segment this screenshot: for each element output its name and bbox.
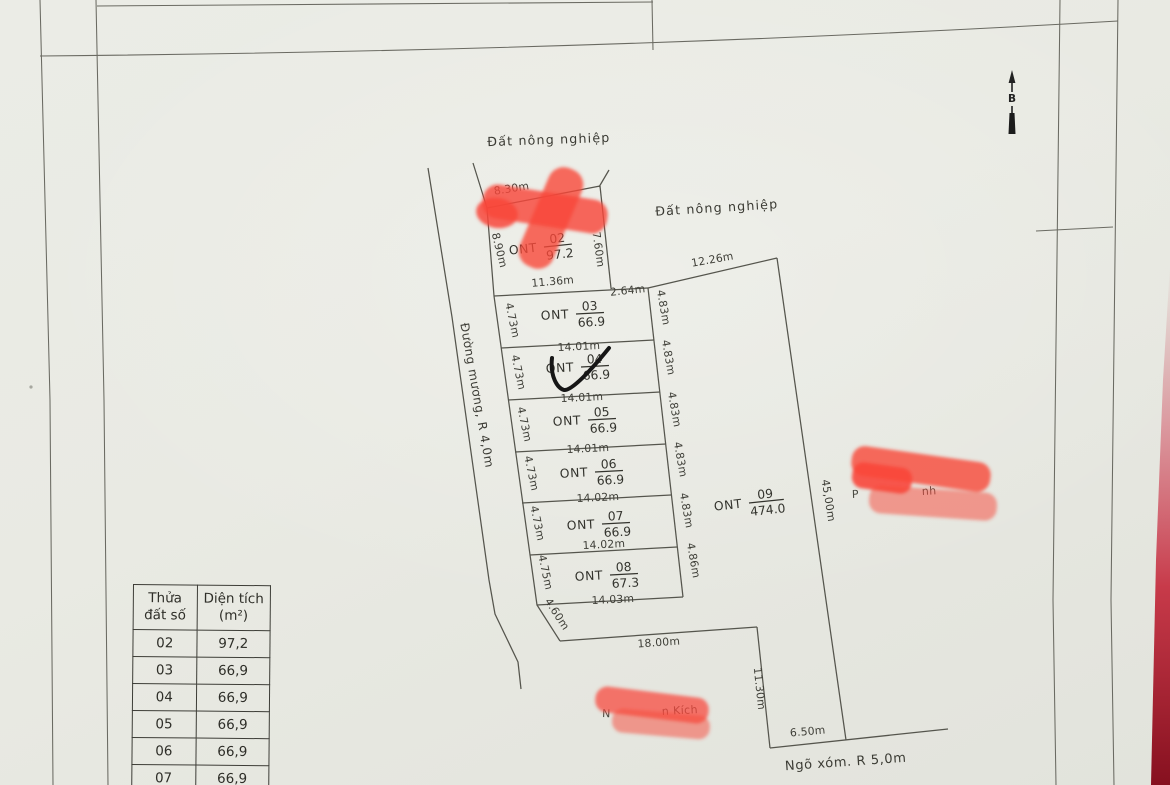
cell-area: 66,9 bbox=[196, 738, 270, 766]
svg-text:474.0: 474.0 bbox=[750, 501, 786, 519]
cell-plot: 05 bbox=[132, 710, 196, 738]
cell-plot: 06 bbox=[132, 737, 196, 765]
svg-text:ONT: ONT bbox=[566, 517, 595, 532]
cell-plot: 03 bbox=[133, 657, 197, 685]
plot-label-05: ONT 05 66.9 bbox=[552, 405, 617, 438]
dim-18-00: 18.00m bbox=[637, 635, 680, 651]
table-row: 06 66,9 bbox=[132, 737, 269, 765]
dim-14-01-c: 14.01m bbox=[566, 441, 609, 456]
plot-label-09: ONT 09 474.0 bbox=[713, 485, 787, 522]
table-row: 07 66,9 bbox=[132, 764, 269, 785]
dim-4-60: 4.60m bbox=[542, 596, 572, 633]
table-row: 04 66,9 bbox=[132, 684, 269, 712]
dim-4-83-a: 4.83m bbox=[654, 289, 673, 326]
svg-text:67.3: 67.3 bbox=[611, 575, 639, 590]
name-fragment-right-start: P bbox=[852, 488, 859, 501]
cell-area: 66,9 bbox=[196, 711, 270, 739]
header-area-line1: Diện tích bbox=[203, 591, 263, 608]
dim-45-00: 45,00m bbox=[819, 478, 839, 522]
cell-area: 66,9 bbox=[196, 657, 270, 685]
land-use-label-top: Đất nông nghiệp bbox=[487, 130, 611, 149]
dim-4-73-b: 4.73m bbox=[508, 354, 528, 391]
plot-label-08: ONT 08 67.3 bbox=[574, 560, 639, 593]
dim-12-26: 12.26m bbox=[690, 249, 734, 269]
svg-text:05: 05 bbox=[593, 405, 609, 420]
svg-text:ONT: ONT bbox=[552, 413, 581, 428]
cell-area: 97,2 bbox=[196, 630, 270, 658]
dim-4-86: 4.86m bbox=[684, 542, 703, 579]
svg-text:66.9: 66.9 bbox=[577, 314, 605, 329]
table-header-row: Thửa đất số Diện tích (m²) bbox=[133, 585, 270, 631]
header-area: Diện tích (m²) bbox=[197, 585, 271, 631]
svg-text:ONT: ONT bbox=[713, 497, 743, 514]
table-row: 02 97,2 bbox=[133, 630, 270, 658]
dim-4-73-c: 4.73m bbox=[514, 406, 534, 443]
dim-4-75: 4.75m bbox=[535, 554, 555, 591]
alley-road-label: Ngõ xóm. R 5,0m bbox=[785, 751, 907, 774]
dim-2-64: 2.64m bbox=[609, 282, 646, 299]
dim-4-83-b: 4.83m bbox=[659, 339, 678, 376]
svg-text:66.9: 66.9 bbox=[596, 472, 624, 487]
svg-text:08: 08 bbox=[615, 560, 631, 575]
header-plot-line1: Thửa bbox=[148, 590, 182, 606]
dim-11-36: 11.36m bbox=[531, 273, 575, 290]
plot-label-07: ONT 07 66.9 bbox=[566, 509, 631, 542]
dim-4-83-e: 4.83m bbox=[677, 492, 696, 529]
scribble-bottom-name bbox=[594, 685, 711, 740]
dust-speck bbox=[29, 385, 32, 388]
dim-14-01-b: 14.01m bbox=[560, 390, 603, 405]
land-use-label-right: Đất nông nghiệp bbox=[655, 196, 779, 218]
dim-4-73-d: 4.73m bbox=[521, 455, 541, 492]
cell-plot: 07 bbox=[132, 764, 196, 785]
plot-label-03: ONT 03 66.9 bbox=[540, 299, 605, 332]
svg-text:ONT: ONT bbox=[540, 307, 569, 322]
svg-text:66.9: 66.9 bbox=[589, 420, 617, 435]
north-label: B bbox=[1008, 93, 1016, 105]
table-row: 03 66,9 bbox=[133, 657, 270, 685]
plot-area-table: Thửa đất số Diện tích (m²) 02 97,2 03 66… bbox=[131, 584, 271, 785]
cell-area: 66,9 bbox=[195, 765, 269, 785]
table-row: 05 66,9 bbox=[132, 710, 269, 738]
dim-4-83-d: 4.83m bbox=[671, 441, 690, 478]
photo-edge-red-strip bbox=[1151, 265, 1170, 785]
svg-text:03: 03 bbox=[581, 299, 597, 314]
dim-4-73-e: 4.73m bbox=[527, 505, 547, 542]
scribble-plot-02 bbox=[474, 162, 610, 274]
scribble-right-name bbox=[850, 444, 998, 521]
dim-14-03: 14.03m bbox=[591, 592, 634, 607]
north-arrow: B bbox=[1008, 70, 1016, 134]
svg-text:ONT: ONT bbox=[574, 568, 603, 583]
dim-6-50: 6.50m bbox=[789, 723, 826, 739]
cell-plot: 04 bbox=[132, 684, 196, 712]
header-plot-line2: đất số bbox=[144, 607, 186, 623]
plot-label-06: ONT 06 66.9 bbox=[559, 457, 624, 490]
dim-4-83-c: 4.83m bbox=[665, 391, 684, 428]
red-marker-scribbles bbox=[474, 162, 998, 740]
dim-7-60: 7.60m bbox=[590, 231, 608, 268]
redacted-name-fragments: P nh N n Kích bbox=[602, 484, 937, 720]
photographed-cadastral-sheet: B Đất nông nghiệp Đất nông nghiệp Đường … bbox=[0, 0, 1170, 785]
svg-text:66.9: 66.9 bbox=[603, 524, 631, 539]
svg-text:07: 07 bbox=[607, 509, 623, 524]
cell-plot: 02 bbox=[133, 630, 197, 658]
header-area-line2: (m²) bbox=[219, 608, 248, 624]
svg-text:ONT: ONT bbox=[559, 465, 588, 480]
header-plot-number: Thửa đất số bbox=[133, 585, 197, 631]
dim-14-02-a: 14.02m bbox=[576, 490, 619, 505]
svg-text:06: 06 bbox=[600, 457, 617, 472]
svg-text:09: 09 bbox=[757, 486, 774, 502]
cell-area: 66,9 bbox=[196, 684, 270, 712]
dim-4-73-a: 4.73m bbox=[502, 302, 522, 339]
dim-11-30: 11.30m bbox=[751, 667, 768, 711]
